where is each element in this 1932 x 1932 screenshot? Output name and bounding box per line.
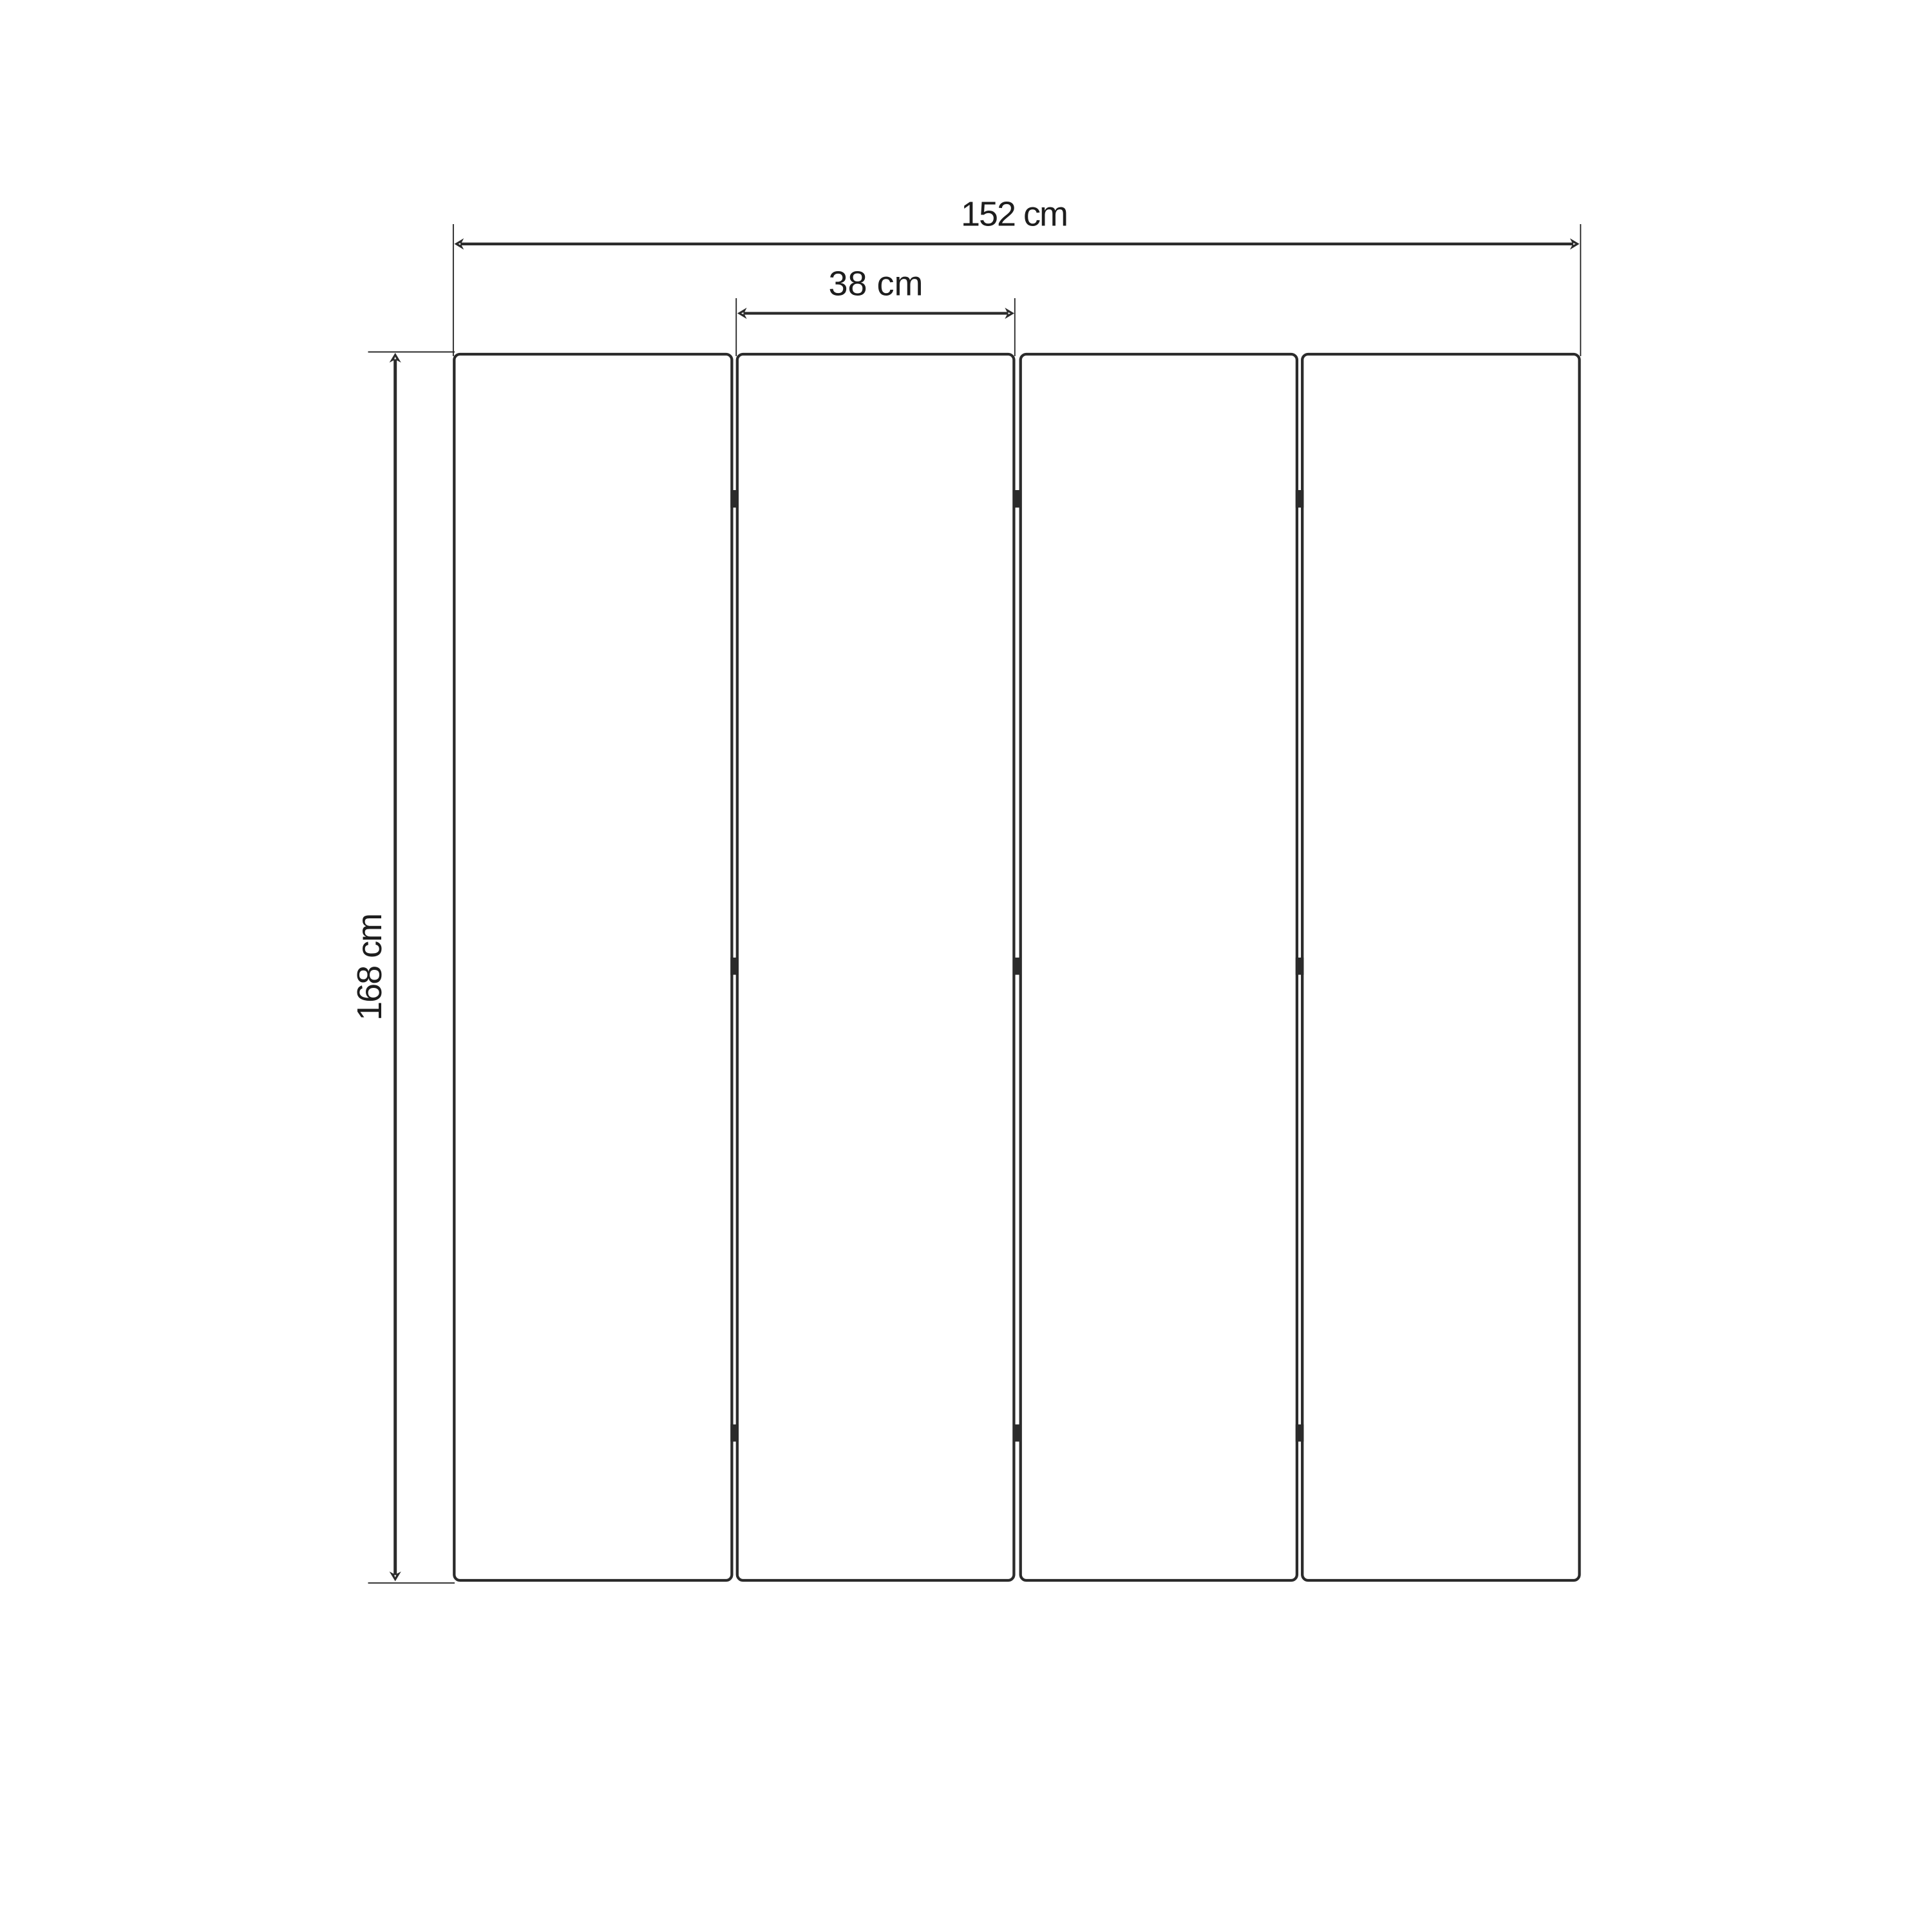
svg-text:38 cm: 38 cm: [828, 265, 923, 303]
svg-text:152 cm: 152 cm: [961, 195, 1067, 234]
svg-text:168 cm: 168 cm: [350, 914, 389, 1021]
